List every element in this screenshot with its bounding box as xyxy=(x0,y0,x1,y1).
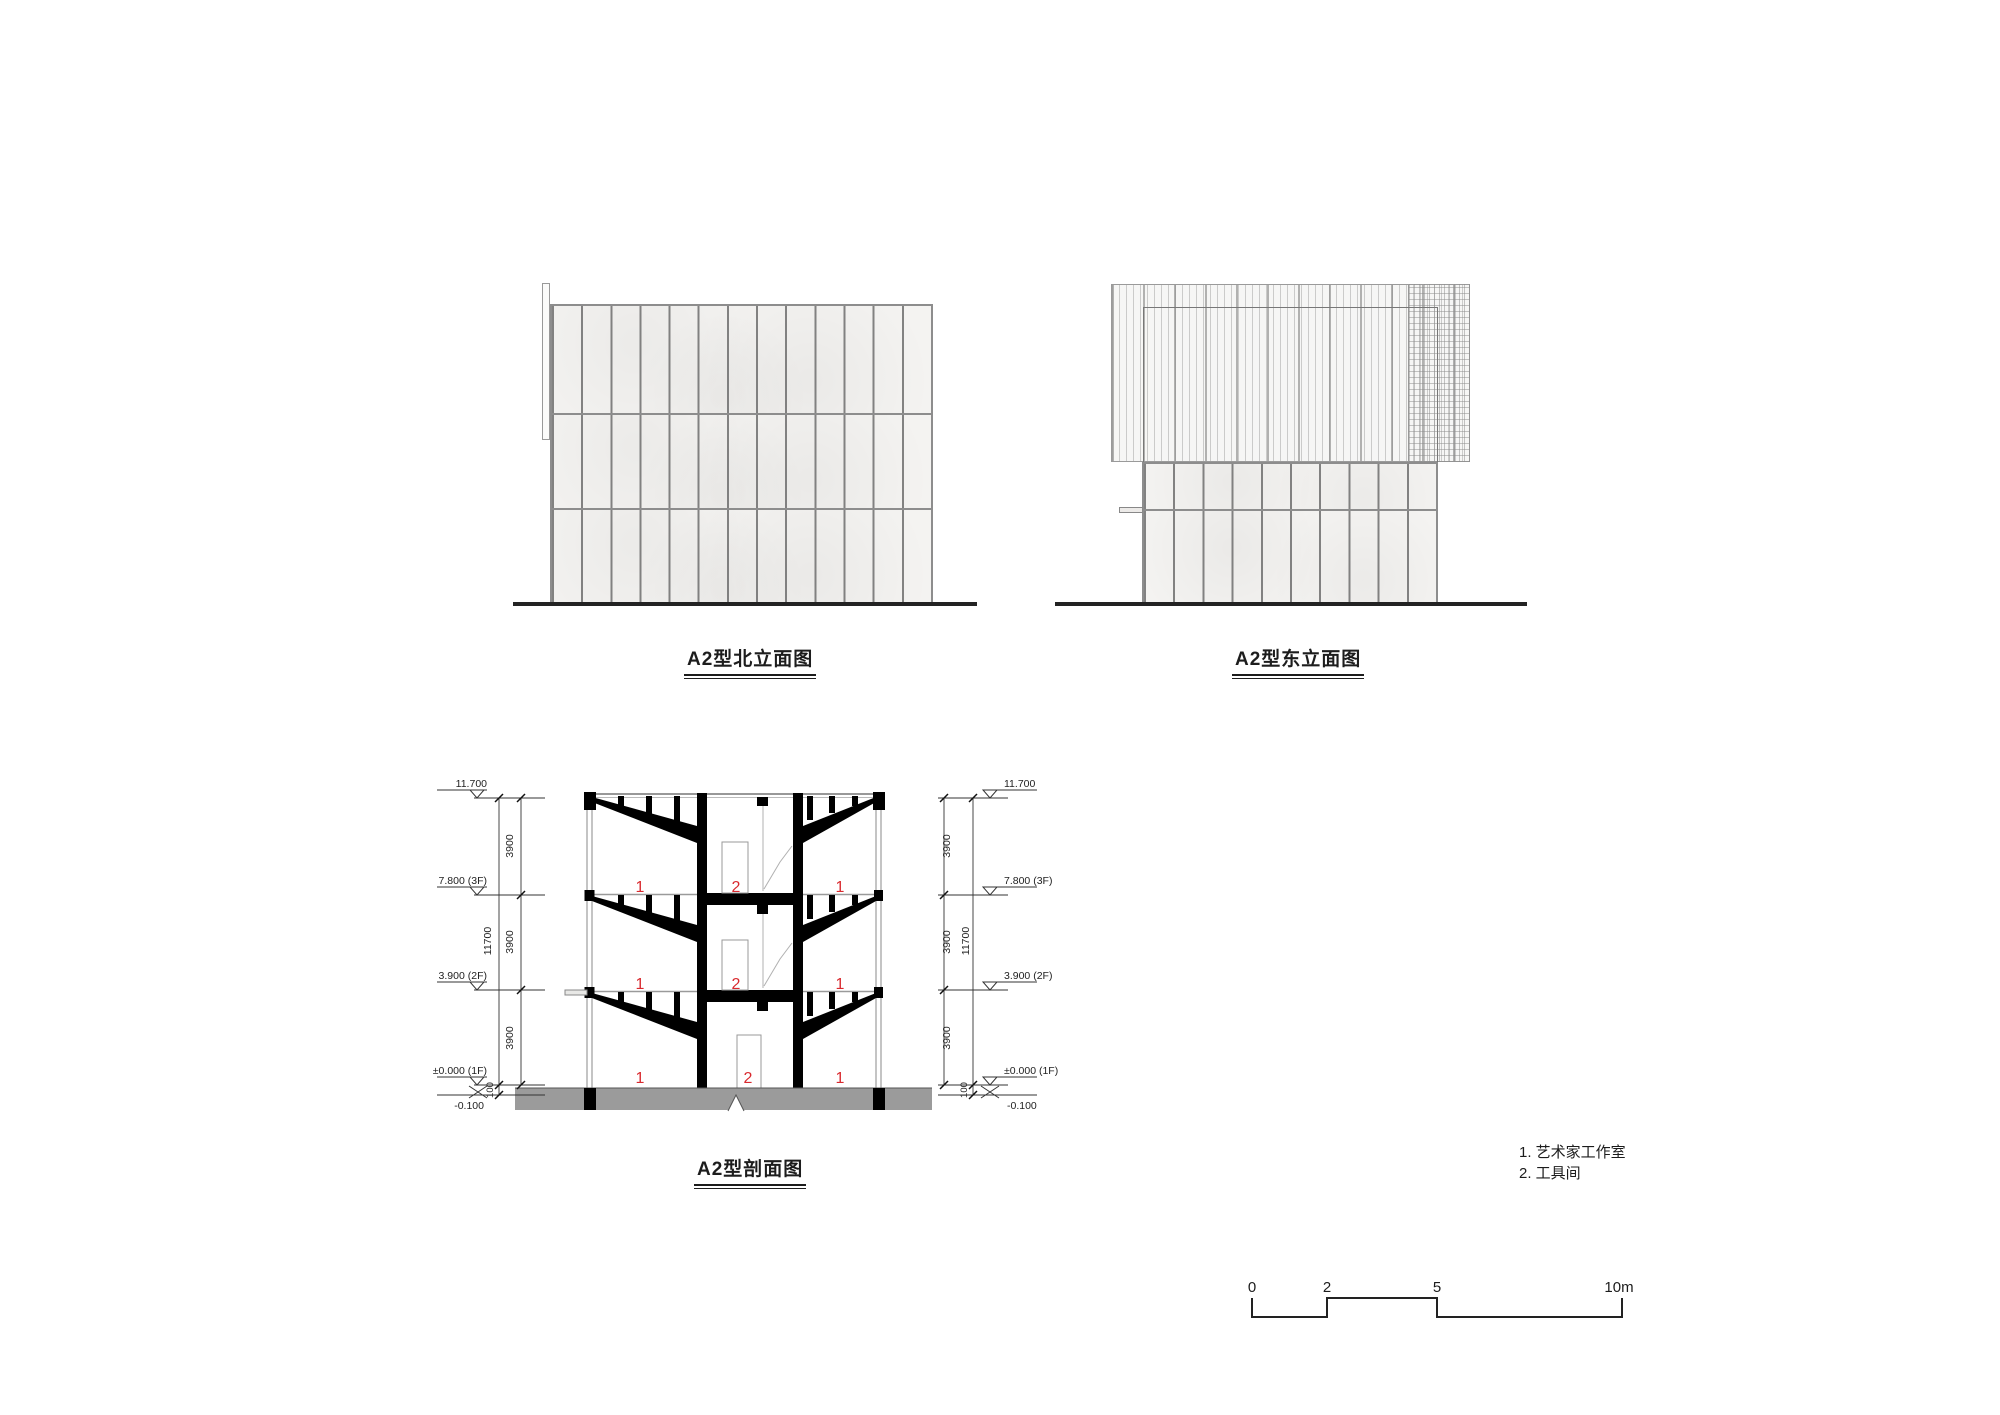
left-level-1f: ±0.000 (1F) xyxy=(433,1065,487,1077)
scale-bar: 0 2 5 10m xyxy=(1248,1279,1634,1317)
right-level-2f: 3.900 (2F) xyxy=(1004,970,1052,982)
left-level-2f: 3.900 (2F) xyxy=(439,970,487,982)
right-level-below: -0.100 xyxy=(1007,1100,1037,1112)
section-beams xyxy=(592,796,876,1039)
room-label-3f-right: 1 xyxy=(836,879,845,896)
legend-item-studio: 1. 艺术家工作室 xyxy=(1519,1142,1626,1163)
room-label-3f-core: 2 xyxy=(732,879,741,896)
left-dim-total: 11700 xyxy=(482,927,494,956)
right-dim-total: 11700 xyxy=(960,927,972,956)
right-dimension-stack: 11.700 7.800 (3F) 3.900 (2F) ±0.000 (1F)… xyxy=(938,778,1058,1112)
scale-tick-2: 2 xyxy=(1323,1279,1331,1296)
right-dim-storey-2: 3900 xyxy=(941,930,953,954)
legend-item-tool: 2. 工具间 xyxy=(1519,1163,1626,1184)
right-dim-found: 100 xyxy=(959,1082,970,1098)
room-label-2f-core: 2 xyxy=(732,976,741,993)
scale-tick-10m: 10m xyxy=(1604,1279,1633,1296)
scale-tick-0: 0 xyxy=(1248,1279,1256,1296)
left-dimension-stack: 11.700 7.800 (3F) 3.900 (2F) ±0.000 (1F)… xyxy=(433,778,545,1112)
left-level-3f: 7.800 (3F) xyxy=(439,875,487,887)
right-dim-storey-3: 3900 xyxy=(941,834,953,858)
room-label-3f-left: 1 xyxy=(636,879,645,896)
section-title: A2型剖面图 xyxy=(694,1154,806,1186)
scale-tick-5: 5 xyxy=(1433,1279,1441,1296)
right-level-roof: 11.700 xyxy=(1004,778,1035,790)
left-dim-found: 100 xyxy=(485,1082,496,1098)
section-foundation xyxy=(515,1088,932,1111)
left-level-below: -0.100 xyxy=(454,1100,484,1112)
left-level-roof: 11.700 xyxy=(456,778,487,790)
room-label-2f-right: 1 xyxy=(836,976,845,993)
section-doors xyxy=(722,842,761,1088)
drawing-sheet: A2型北立面图 A2型东立面图 xyxy=(0,0,2000,1415)
right-level-3f: 7.800 (3F) xyxy=(1004,875,1052,887)
right-level-markers xyxy=(981,790,1037,1098)
left-dim-storey-3: 3900 xyxy=(504,834,516,858)
section-roof xyxy=(587,794,881,798)
legend: 1. 艺术家工作室 2. 工具间 xyxy=(1519,1142,1626,1184)
left-dim-storey-1: 3900 xyxy=(504,1026,516,1050)
right-level-1f: ±0.000 (1F) xyxy=(1004,1065,1058,1077)
section-ledge xyxy=(565,990,587,995)
room-label-2f-left: 1 xyxy=(636,976,645,993)
room-label-1f-right: 1 xyxy=(836,1070,845,1087)
room-label-1f-left: 1 xyxy=(636,1070,645,1087)
left-dim-storey-2: 3900 xyxy=(504,930,516,954)
room-label-1f-core: 2 xyxy=(744,1070,753,1087)
right-dim-storey-1: 3900 xyxy=(941,1026,953,1050)
section-linework: 11.700 7.800 (3F) 3.900 (2F) ±0.000 (1F)… xyxy=(0,0,2000,1415)
